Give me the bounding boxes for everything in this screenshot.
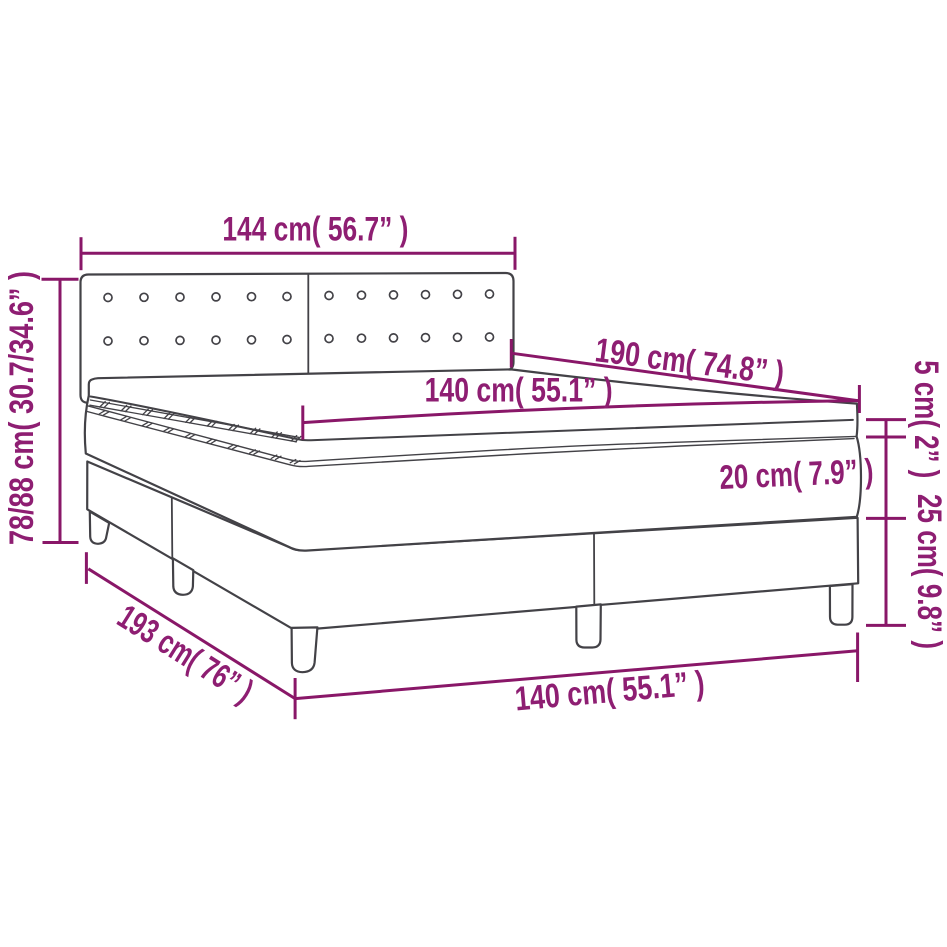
svg-text:140 cm( 55.1” ): 140 cm( 55.1” ) (425, 371, 613, 409)
svg-text:193 cm( 76” ): 193 cm( 76” ) (111, 598, 260, 711)
svg-text:144 cm( 56.7” ): 144 cm( 56.7” ) (222, 211, 408, 249)
svg-text:78/88 cm( 30.7/34.6” ): 78/88 cm( 30.7/34.6” ) (3, 271, 41, 545)
svg-text:25 cm( 9.8” ): 25 cm( 9.8” ) (910, 494, 947, 649)
svg-text:20 cm( 7.9” ): 20 cm( 7.9” ) (719, 452, 875, 497)
svg-text:5 cm( 2” ): 5 cm( 2” ) (907, 360, 945, 478)
svg-text:140 cm( 55.1” ): 140 cm( 55.1” ) (513, 664, 706, 718)
